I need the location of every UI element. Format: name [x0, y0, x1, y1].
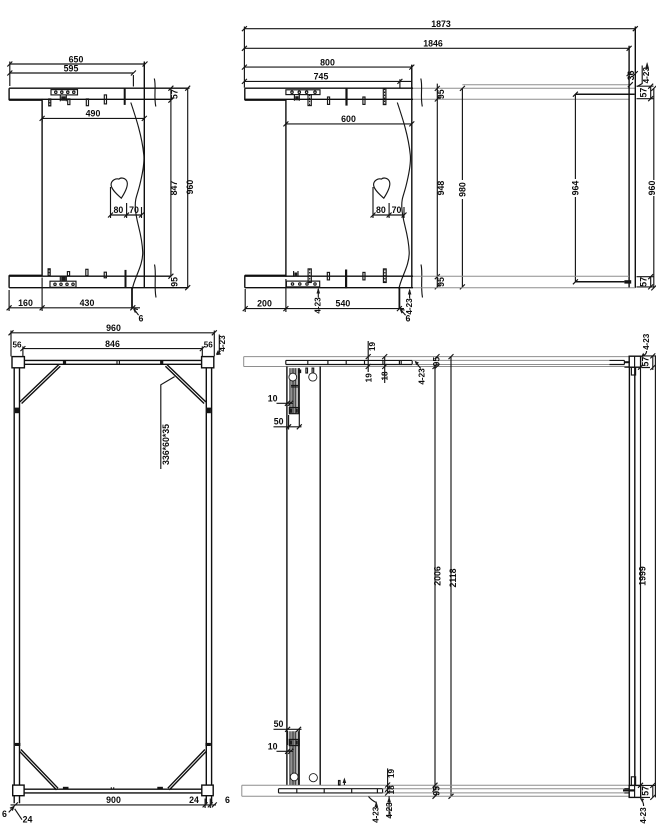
svg-text:57: 57	[639, 277, 649, 287]
svg-text:948: 948	[436, 181, 446, 196]
svg-text:70: 70	[129, 205, 139, 215]
svg-text:960: 960	[106, 323, 121, 333]
svg-text:80: 80	[376, 205, 386, 215]
svg-text:57: 57	[641, 357, 651, 367]
svg-text:1999: 1999	[638, 566, 648, 586]
svg-text:1846: 1846	[423, 39, 443, 49]
svg-text:95: 95	[436, 89, 446, 99]
svg-text:430: 430	[80, 298, 95, 308]
svg-text:57: 57	[170, 89, 180, 99]
svg-text:6: 6	[225, 795, 230, 805]
svg-text:4-23: 4-23	[372, 806, 381, 823]
svg-text:160: 160	[18, 298, 33, 308]
svg-text:960: 960	[185, 180, 195, 195]
svg-text:6: 6	[2, 809, 7, 819]
svg-text:964: 964	[570, 181, 580, 196]
svg-text:56: 56	[12, 341, 22, 350]
svg-text:36: 36	[626, 71, 636, 81]
svg-text:56: 56	[204, 341, 214, 350]
svg-text:200: 200	[257, 299, 272, 309]
svg-text:2118: 2118	[448, 568, 458, 587]
svg-text:4-23: 4-23	[642, 333, 651, 350]
svg-text:57: 57	[639, 88, 649, 98]
svg-text:2006: 2006	[432, 566, 442, 586]
svg-text:336*60*35: 336*60*35	[161, 424, 171, 465]
svg-text:800: 800	[320, 57, 335, 67]
svg-text:6: 6	[406, 314, 411, 324]
svg-text:18: 18	[381, 371, 390, 381]
svg-text:4-23: 4-23	[218, 335, 227, 352]
svg-text:19: 19	[387, 769, 396, 779]
svg-text:70: 70	[392, 205, 402, 215]
svg-text:846: 846	[105, 339, 120, 349]
svg-text:10: 10	[268, 394, 278, 404]
svg-text:540: 540	[336, 299, 351, 309]
svg-text:600: 600	[341, 114, 356, 124]
svg-text:18: 18	[387, 785, 396, 795]
svg-text:595: 595	[64, 64, 79, 74]
svg-text:4-23: 4-23	[417, 368, 426, 385]
svg-text:1873: 1873	[431, 19, 451, 29]
svg-text:50: 50	[274, 416, 284, 426]
svg-text:4-23: 4-23	[314, 297, 323, 314]
svg-text:980: 980	[457, 182, 467, 197]
svg-text:95: 95	[436, 277, 446, 287]
svg-text:4-23: 4-23	[642, 67, 651, 84]
svg-text:19: 19	[364, 373, 373, 383]
svg-text:24: 24	[189, 795, 199, 805]
svg-text:4-23: 4-23	[639, 807, 648, 824]
svg-text:19: 19	[368, 342, 377, 352]
svg-text:10: 10	[268, 742, 278, 752]
svg-text:4-23: 4-23	[385, 802, 394, 819]
svg-text:847: 847	[169, 181, 179, 196]
svg-text:95: 95	[170, 277, 180, 287]
svg-text:4-23: 4-23	[405, 298, 414, 315]
svg-text:24: 24	[23, 814, 33, 824]
svg-text:490: 490	[86, 109, 101, 119]
svg-text:6: 6	[139, 314, 144, 324]
svg-text:745: 745	[314, 72, 329, 82]
svg-text:50: 50	[274, 719, 284, 729]
svg-text:57: 57	[641, 786, 651, 796]
svg-text:960: 960	[647, 181, 656, 196]
svg-text:80: 80	[114, 205, 124, 215]
svg-text:900: 900	[106, 795, 121, 805]
svg-text:95: 95	[431, 786, 441, 796]
